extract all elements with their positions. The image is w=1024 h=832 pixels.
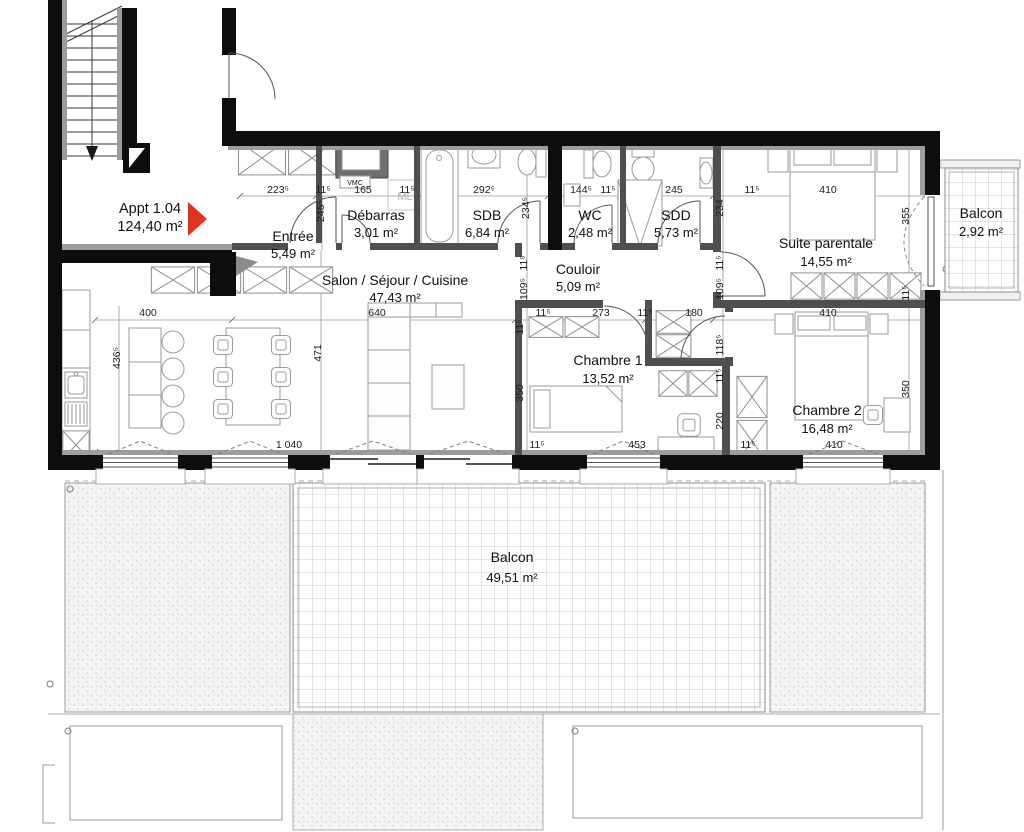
room-area: 3,01 m² xyxy=(354,225,399,240)
stool xyxy=(162,385,184,407)
chambre1-desk xyxy=(658,414,714,455)
apartment-area: 124,40 m² xyxy=(117,219,182,235)
room-name: Débarras xyxy=(347,207,405,223)
wc-toilet xyxy=(564,150,611,206)
nightstand xyxy=(870,314,888,334)
coffee-table xyxy=(432,365,464,409)
dim-label: 11⁵ xyxy=(399,184,414,196)
pillow xyxy=(534,390,550,428)
dim-label: 11⁵ xyxy=(900,285,912,300)
stool xyxy=(162,412,184,434)
room-area: 49,51 m² xyxy=(486,570,538,585)
dim-label: 11⁵ xyxy=(518,255,530,270)
dim-label: 109⁵ xyxy=(714,278,726,300)
sofa xyxy=(368,303,464,450)
dim-label: 273 xyxy=(592,307,610,319)
room-area: 6,84 m² xyxy=(465,225,510,240)
dim-label: 11⁵ xyxy=(740,439,755,451)
apartment-name: Appt 1.04 xyxy=(119,201,181,217)
sliding-door xyxy=(417,441,519,484)
room-name: SDB xyxy=(473,207,502,223)
floor-plan: Appt 1.04 124,40 m² Entrée 5,49 m² Débar… xyxy=(0,0,1024,832)
apartment-label: Appt 1.04 124,40 m² xyxy=(117,201,207,236)
terrace-right xyxy=(770,483,925,712)
bathtub xyxy=(421,143,458,249)
sdd-toilet xyxy=(632,148,654,181)
room-area: 5,73 m² xyxy=(654,225,699,240)
room-area: 2,48 m² xyxy=(568,225,613,240)
chambre1-wardrobe xyxy=(659,371,717,396)
dim-label: 245 xyxy=(665,184,683,196)
nightstand xyxy=(768,148,788,172)
apartment-arrow-icon xyxy=(188,202,207,236)
dim-label: 11⁵ xyxy=(744,184,759,196)
dim-label: 234 xyxy=(714,199,726,217)
room-name: Suite parentale xyxy=(779,235,873,251)
room-area: 13,52 m² xyxy=(582,371,634,386)
window xyxy=(580,441,667,484)
sdd-sink xyxy=(700,158,713,188)
room-name: Balcon xyxy=(960,205,1003,221)
dim-label: 292⁵ xyxy=(473,184,495,196)
nightstand xyxy=(877,148,897,172)
dim-label: 410 xyxy=(825,439,843,451)
dim-label: 410 xyxy=(819,307,837,319)
chambre2-desk xyxy=(864,398,911,432)
balcony-bottom xyxy=(293,483,765,712)
room-area: 14,55 m² xyxy=(800,254,852,269)
room-name: Chambre 1 xyxy=(573,352,642,368)
dim-label: 11⁵ xyxy=(529,439,544,451)
dim-label: 109⁵ xyxy=(518,278,530,300)
room-name: Balcon xyxy=(491,549,534,565)
dim-label: 410 xyxy=(819,184,837,196)
dim-label: 11⁵ xyxy=(535,307,550,319)
stair-direction-arrow-icon xyxy=(86,146,98,161)
dim-label: 118⁵ xyxy=(714,334,726,355)
window xyxy=(96,441,185,484)
dim-label: 355 xyxy=(900,207,912,225)
kitchen-island xyxy=(129,328,184,434)
dim-label: 11⁵ xyxy=(514,319,526,334)
suite-door xyxy=(721,252,765,296)
dim-label: 1 040 xyxy=(276,439,302,451)
room-area: 47,43 m² xyxy=(369,290,421,305)
dim-label: 350 xyxy=(900,380,912,398)
dining-table xyxy=(214,328,291,425)
room-name: WC xyxy=(578,207,601,223)
room-name: Couloir xyxy=(556,261,601,277)
dim-label: 220 xyxy=(714,412,726,430)
dim-label: 640 xyxy=(368,307,386,319)
dim-label: 180 xyxy=(685,307,703,319)
dim-label: 436⁵ xyxy=(111,347,123,369)
dim-label: 350 xyxy=(514,384,526,402)
dim-label: 223⁵ xyxy=(267,184,289,196)
dim-label: 11⁵ xyxy=(714,255,726,270)
dim-label: 11⁵ xyxy=(714,368,726,383)
chambre1-bed xyxy=(530,386,622,432)
dim-label: 165 xyxy=(354,184,372,196)
sdb-toilet xyxy=(518,147,546,177)
dim-label: 11⁵ xyxy=(637,307,652,319)
dim-label: 234⁵ xyxy=(520,197,532,219)
room-name: Entrée xyxy=(272,228,313,244)
room-area: 16,48 m² xyxy=(801,421,853,436)
room-name: Chambre 2 xyxy=(792,402,861,418)
window xyxy=(796,441,890,484)
room-name: SDD xyxy=(661,207,691,223)
room-area: 5,49 m² xyxy=(271,246,316,261)
stool xyxy=(162,358,184,380)
terrace-left xyxy=(65,483,290,712)
dim-label: 245⁵ xyxy=(315,200,327,222)
room-name: Salon / Séjour / Cuisine xyxy=(322,272,469,288)
staircase xyxy=(62,6,122,161)
entrance-door xyxy=(229,53,275,99)
dim-label: 471 xyxy=(312,344,324,362)
dim-label: 453 xyxy=(628,439,646,451)
dim-label: 11⁵ xyxy=(315,184,330,196)
nightstand xyxy=(775,314,793,334)
dim-label: 400 xyxy=(139,307,157,319)
dim-label: 11⁵ xyxy=(600,184,615,196)
dim-label: 144⁵ xyxy=(570,184,592,196)
room-area: 2,92 m² xyxy=(959,224,1004,239)
stool xyxy=(162,331,184,353)
room-area: 5,09 m² xyxy=(556,279,601,294)
